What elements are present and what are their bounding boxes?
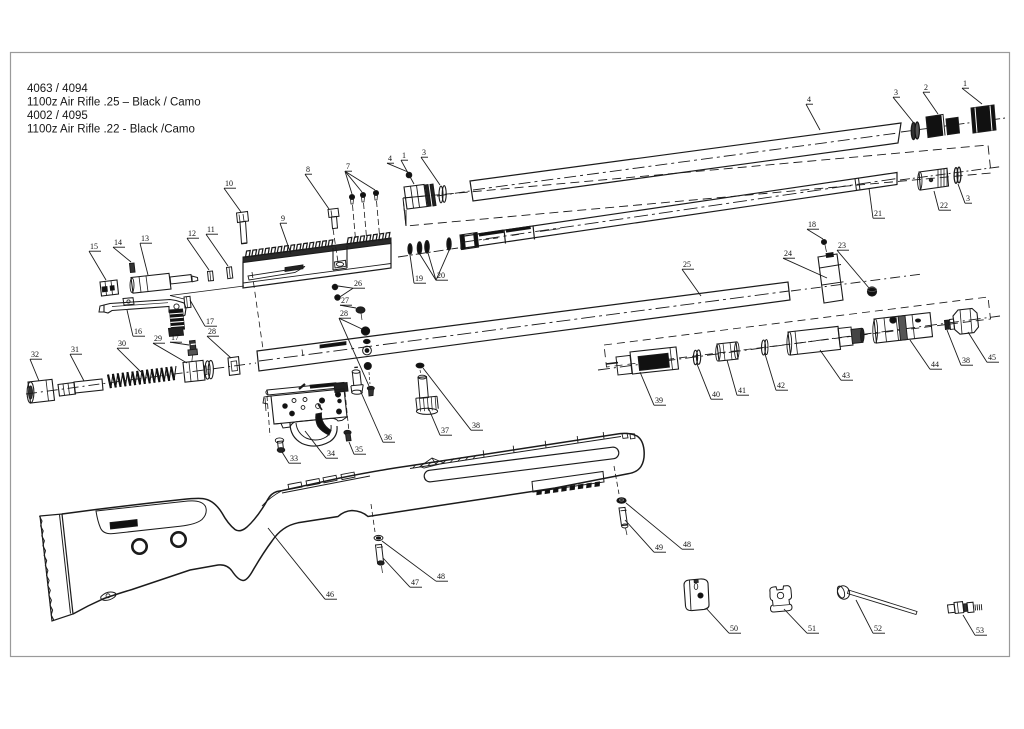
svg-text:35: 35 <box>355 445 363 454</box>
svg-text:7: 7 <box>346 162 350 171</box>
svg-text:8: 8 <box>306 165 310 174</box>
svg-text:45: 45 <box>988 353 996 362</box>
svg-text:22: 22 <box>940 201 948 210</box>
svg-text:37: 37 <box>441 426 449 435</box>
svg-text:16: 16 <box>134 327 142 336</box>
svg-text:33: 33 <box>290 454 298 463</box>
svg-text:25: 25 <box>683 260 691 269</box>
svg-text:36: 36 <box>384 433 392 442</box>
svg-text:31: 31 <box>71 345 79 354</box>
svg-text:46: 46 <box>326 590 334 599</box>
svg-text:23: 23 <box>838 241 846 250</box>
svg-text:53: 53 <box>976 626 984 635</box>
svg-text:11: 11 <box>207 225 215 234</box>
svg-text:10: 10 <box>225 179 233 188</box>
svg-text:51: 51 <box>808 624 816 633</box>
svg-text:29: 29 <box>154 334 162 343</box>
svg-text:42: 42 <box>777 381 785 390</box>
svg-text:32: 32 <box>31 350 39 359</box>
svg-text:52: 52 <box>874 624 882 633</box>
svg-text:49: 49 <box>655 543 663 552</box>
svg-text:27: 27 <box>341 296 349 305</box>
svg-text:4002 / 4095: 4002 / 4095 <box>27 110 88 122</box>
svg-text:47: 47 <box>411 578 419 587</box>
svg-text:4063 / 4094: 4063 / 4094 <box>27 83 88 95</box>
svg-text:1: 1 <box>402 151 406 160</box>
svg-text:48: 48 <box>683 540 691 549</box>
svg-text:15: 15 <box>90 242 98 251</box>
svg-text:34: 34 <box>327 449 335 458</box>
svg-text:30: 30 <box>118 339 126 348</box>
svg-text:21: 21 <box>874 209 882 218</box>
svg-text:50: 50 <box>730 624 738 633</box>
svg-text:48: 48 <box>437 572 445 581</box>
svg-text:13: 13 <box>141 234 149 243</box>
svg-text:20: 20 <box>437 271 445 280</box>
svg-text:1100z Air Rifle .25 – Black /: 1100z Air Rifle .25 – Black / Camo <box>27 97 201 109</box>
svg-text:3: 3 <box>422 148 426 157</box>
svg-text:38: 38 <box>962 356 970 365</box>
svg-text:28: 28 <box>208 327 216 336</box>
svg-text:9: 9 <box>281 214 285 223</box>
svg-text:1: 1 <box>963 79 967 88</box>
svg-text:44: 44 <box>931 360 939 369</box>
svg-text:38: 38 <box>472 421 480 430</box>
svg-text:14: 14 <box>114 238 122 247</box>
svg-text:3: 3 <box>966 194 970 203</box>
svg-text:12: 12 <box>188 229 196 238</box>
svg-text:40: 40 <box>712 390 720 399</box>
svg-text:1100z Air Rifle .22 - Black /C: 1100z Air Rifle .22 - Black /Camo <box>27 124 195 136</box>
svg-text:41: 41 <box>738 386 746 395</box>
svg-text:17: 17 <box>206 317 214 326</box>
svg-text:39: 39 <box>655 396 663 405</box>
svg-text:4: 4 <box>807 95 811 104</box>
svg-text:18: 18 <box>808 220 816 229</box>
svg-text:26: 26 <box>354 279 362 288</box>
svg-text:17: 17 <box>171 333 179 342</box>
svg-text:19: 19 <box>415 274 423 283</box>
svg-text:28: 28 <box>340 309 348 318</box>
svg-text:2: 2 <box>924 83 928 92</box>
svg-text:43: 43 <box>842 371 850 380</box>
svg-text:24: 24 <box>784 249 792 258</box>
svg-text:4: 4 <box>388 154 392 163</box>
svg-text:3: 3 <box>894 88 898 97</box>
